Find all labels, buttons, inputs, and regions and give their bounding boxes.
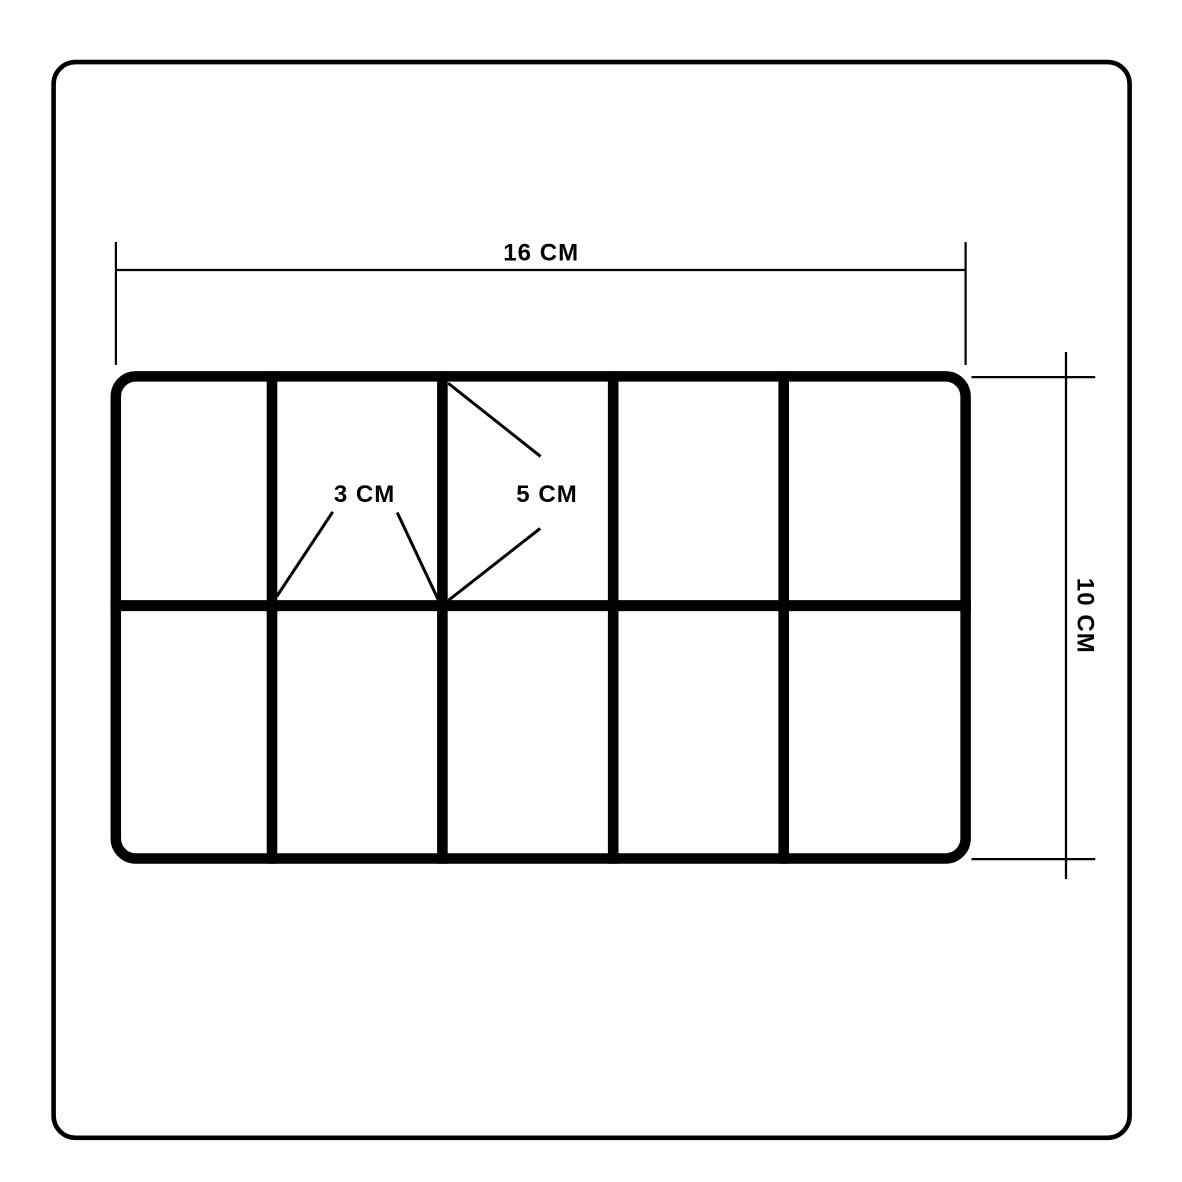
svg-text:3 CM: 3 CM (334, 481, 396, 508)
svg-text:10 CM: 10 CM (1072, 578, 1099, 654)
svg-text:5 CM: 5 CM (516, 481, 578, 508)
svg-text:16 CM: 16 CM (503, 239, 579, 266)
